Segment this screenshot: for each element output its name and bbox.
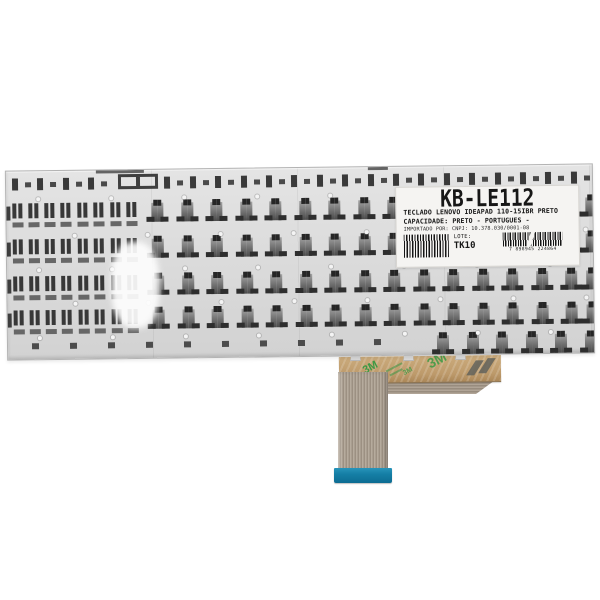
- mount-clip-pair: [13, 239, 40, 263]
- mount-hook: [502, 302, 513, 324]
- mount-hook: [365, 270, 376, 292]
- mount-hook: [512, 268, 523, 290]
- screw-hole: [328, 194, 332, 198]
- mount-clip-foot: [374, 339, 381, 345]
- mount-hook: [157, 200, 168, 222]
- ribbon-cable: [338, 372, 388, 470]
- mount-clip-pair: [14, 310, 41, 334]
- mount-clip-pair: [13, 276, 40, 300]
- mount-hook: [294, 234, 305, 256]
- mount-hook: [177, 306, 188, 328]
- mount-hook: [531, 302, 542, 324]
- screw-hole: [438, 297, 442, 301]
- screw-hole: [330, 333, 334, 337]
- mount-clip-small: [63, 178, 83, 191]
- screw-hole: [184, 334, 188, 338]
- mount-clip-pair: [12, 203, 39, 227]
- mount-clip-small: [545, 172, 565, 185]
- mount-hook: [442, 269, 453, 291]
- mount-clip-pair: [45, 239, 72, 263]
- screw-hole: [511, 296, 515, 300]
- mount-hook: [593, 301, 596, 323]
- mount-hook: [265, 234, 276, 256]
- screw-hole: [255, 194, 259, 198]
- mount-hook: [491, 332, 502, 354]
- barcode-digits: 7 898945 224864: [500, 247, 566, 253]
- ean-barcode-icon: [503, 232, 563, 247]
- mount-clip-small: [368, 174, 388, 187]
- screw-hole: [37, 268, 41, 272]
- mount-clip-small: [215, 176, 235, 189]
- mount-hook: [324, 271, 335, 293]
- screw-hole: [38, 336, 42, 340]
- mount-hook: [158, 273, 169, 295]
- mount-hook: [550, 331, 561, 353]
- screw-hole: [219, 300, 223, 304]
- mount-hook: [325, 305, 336, 327]
- screw-hole: [73, 234, 77, 238]
- mount-bracket-wide: [118, 174, 158, 189]
- mount-hook: [561, 331, 572, 353]
- mount-hook: [591, 194, 595, 216]
- mount-clip-small: [37, 178, 57, 191]
- lot-label: LOTE:: [454, 234, 476, 240]
- plate-edge-notch: [368, 167, 388, 170]
- mount-hook: [394, 270, 405, 292]
- screw-hole: [111, 335, 115, 339]
- tape-fine-print: [389, 368, 402, 376]
- screw-hole: [219, 232, 223, 236]
- mount-hook: [531, 268, 542, 290]
- plate-edge-notch: [96, 170, 144, 174]
- mount-hook: [276, 234, 287, 256]
- screw-hole: [109, 196, 113, 200]
- mount-clip-foot: [222, 341, 229, 347]
- mount-clip-edge: [6, 207, 10, 221]
- mount-hook: [542, 268, 553, 290]
- mount-hook: [216, 199, 227, 221]
- mount-hook: [158, 236, 169, 258]
- mount-hook: [276, 271, 287, 293]
- mount-clip-foot: [184, 341, 191, 347]
- screw-hole: [329, 265, 333, 269]
- screw-hole: [365, 230, 369, 234]
- mount-hook: [265, 271, 276, 293]
- screw-hole: [549, 330, 553, 334]
- screw-hole: [73, 302, 77, 306]
- mount-hook: [501, 268, 512, 290]
- mount-clip-small: [418, 173, 438, 186]
- mount-hook: [206, 272, 217, 294]
- label-line-capacity: CAPACIDADE: PRETO - PORTUGUES -: [403, 216, 529, 226]
- screw-hole: [365, 298, 369, 302]
- mount-clip-small: [164, 176, 184, 189]
- mount-hook: [306, 305, 317, 327]
- product-photo: KB-LE112 TECLADO LENOVO IDEAPAD 110-15IB…: [0, 0, 600, 600]
- mount-hook: [384, 304, 395, 326]
- mount-hook: [382, 197, 393, 219]
- mount-hook: [188, 272, 199, 294]
- mount-clip-foot: [336, 339, 343, 345]
- mount-hook: [247, 272, 258, 294]
- logo-3m-icon: 3M: [425, 355, 449, 371]
- screw-hole: [256, 265, 260, 269]
- screw-hole: [183, 266, 187, 270]
- mount-hook: [146, 200, 157, 222]
- mount-hook: [305, 234, 316, 256]
- mount-hook: [246, 199, 257, 221]
- mount-hook: [513, 302, 524, 324]
- mount-clip-small: [291, 175, 311, 188]
- mount-hook: [383, 233, 394, 255]
- mount-hook: [335, 233, 346, 255]
- mount-hook: [176, 235, 187, 257]
- screw-hole: [584, 295, 588, 299]
- mount-hook: [177, 272, 188, 294]
- mount-clip-pair: [110, 202, 137, 226]
- mount-hook: [217, 272, 228, 294]
- mount-clip-foot: [32, 343, 39, 349]
- mount-hook: [520, 331, 531, 353]
- mount-hook: [236, 306, 247, 328]
- mount-clip-edge: [7, 280, 11, 294]
- screw-hole: [476, 331, 480, 335]
- mount-hook: [424, 303, 435, 325]
- mount-hook: [443, 303, 454, 325]
- mount-clip-small: [266, 175, 286, 188]
- screw-hole: [36, 197, 40, 201]
- mount-hook: [592, 230, 596, 252]
- screw-hole: [403, 332, 407, 336]
- mount-hook: [590, 330, 595, 352]
- mount-clip-edge: [7, 243, 11, 257]
- label-line-product: TECLADO LENOVO IDEAPAD 110-15IBR PRETO: [403, 207, 558, 217]
- mount-clip-small: [12, 178, 32, 191]
- mount-hook: [364, 197, 375, 219]
- mount-hook: [581, 267, 592, 289]
- mount-clip-small: [317, 175, 337, 188]
- mount-clip-pair: [45, 276, 72, 300]
- mount-clip-foot: [146, 342, 153, 348]
- mount-hook: [218, 306, 229, 328]
- mount-clip-edge: [8, 314, 12, 328]
- mount-hook: [354, 270, 365, 292]
- mount-hook: [235, 199, 246, 221]
- mount-hook: [306, 271, 317, 293]
- mount-hook: [217, 235, 228, 257]
- mount-hook: [188, 306, 199, 328]
- mount-hook: [580, 194, 591, 216]
- mount-hook: [205, 199, 216, 221]
- mount-clip-small: [342, 174, 362, 187]
- mount-hook: [561, 302, 572, 324]
- mount-hook: [531, 331, 542, 353]
- mount-hook: [472, 332, 483, 354]
- mount-hook: [334, 197, 345, 219]
- mount-hook: [247, 306, 258, 328]
- mount-clip-small: [495, 172, 515, 185]
- mount-clip-pair: [77, 202, 104, 226]
- mount-hook: [364, 233, 375, 255]
- mount-hook: [246, 235, 257, 257]
- mount-hook: [354, 304, 365, 326]
- mount-hook: [579, 330, 590, 352]
- logo-3m-icon: 3M: [402, 366, 414, 377]
- barcode-icon: [404, 234, 449, 258]
- mount-hook: [502, 331, 513, 353]
- product-label: KB-LE112 TECLADO LENOVO IDEAPAD 110-15IB…: [395, 185, 580, 268]
- mount-hook: [295, 305, 306, 327]
- mount-hook: [353, 233, 364, 255]
- mount-hook: [383, 270, 394, 292]
- mount-hook: [432, 332, 443, 354]
- mount-clip-foot: [298, 340, 305, 346]
- mount-hook: [592, 267, 595, 289]
- mount-clip-foot: [108, 342, 115, 348]
- screw-hole: [257, 333, 261, 337]
- mount-clip-pair: [46, 310, 73, 334]
- mount-clip-pair: [44, 203, 71, 227]
- mount-hook: [472, 269, 483, 291]
- mount-clip-foot: [70, 343, 77, 349]
- screw-hole: [292, 299, 296, 303]
- mount-hook: [305, 198, 316, 220]
- mount-hook: [395, 304, 406, 326]
- mount-hook: [235, 235, 246, 257]
- mount-clip-small: [469, 173, 489, 186]
- mount-hook: [236, 272, 247, 294]
- mount-clip-small: [88, 177, 108, 190]
- mount-clip-small: [444, 173, 464, 186]
- mount-hook: [483, 303, 494, 325]
- lot-block: LOTE: TK10: [454, 234, 476, 251]
- mount-clip-small: [571, 171, 591, 184]
- mount-hook: [581, 230, 592, 252]
- screw-hole: [182, 195, 186, 199]
- mount-hook: [365, 304, 376, 326]
- mount-clip-small: [520, 172, 540, 185]
- mount-hook: [264, 198, 275, 220]
- mount-clip-small: [393, 174, 413, 187]
- mount-hook: [443, 332, 454, 354]
- mount-hook: [324, 234, 335, 256]
- mount-hook: [277, 305, 288, 327]
- mount-hook: [176, 199, 187, 221]
- mount-hook: [335, 270, 346, 292]
- mount-hook: [472, 303, 483, 325]
- cable-connector-tip: [334, 468, 392, 483]
- mount-hook: [413, 303, 424, 325]
- lot-value: TK10: [454, 241, 476, 251]
- mount-hook: [582, 301, 593, 323]
- mount-hook: [454, 303, 465, 325]
- mount-clip-pair: [78, 238, 105, 262]
- mount-hook: [294, 198, 305, 220]
- mount-hook: [187, 235, 198, 257]
- mount-hook: [353, 197, 364, 219]
- mount-hook: [461, 332, 472, 354]
- mount-clip-pair: [78, 275, 105, 299]
- mount-hook: [323, 198, 334, 220]
- mount-clip-pair: [79, 309, 106, 333]
- mount-clip-small: [190, 176, 210, 189]
- mount-hook: [187, 199, 198, 221]
- mount-hook: [336, 304, 347, 326]
- mount-hook: [542, 302, 553, 324]
- mount-hook: [453, 269, 464, 291]
- mount-hook: [275, 198, 286, 220]
- screw-hole: [584, 227, 588, 231]
- mount-hook: [295, 271, 306, 293]
- keyboard-backplate: KB-LE112 TECLADO LENOVO IDEAPAD 110-15IB…: [5, 163, 595, 360]
- mount-hook: [266, 305, 277, 327]
- mount-clip-foot: [260, 340, 267, 346]
- mount-hook: [560, 268, 571, 290]
- mount-hook: [413, 269, 424, 291]
- mount-hook: [207, 306, 218, 328]
- screw-hole: [146, 233, 150, 237]
- mount-clip-small: [241, 175, 261, 188]
- mount-hook: [424, 269, 435, 291]
- reflection-highlight: [111, 242, 160, 329]
- mount-hook: [159, 307, 170, 329]
- screw-hole: [292, 231, 296, 235]
- mount-hook: [483, 269, 494, 291]
- mount-hook: [206, 235, 217, 257]
